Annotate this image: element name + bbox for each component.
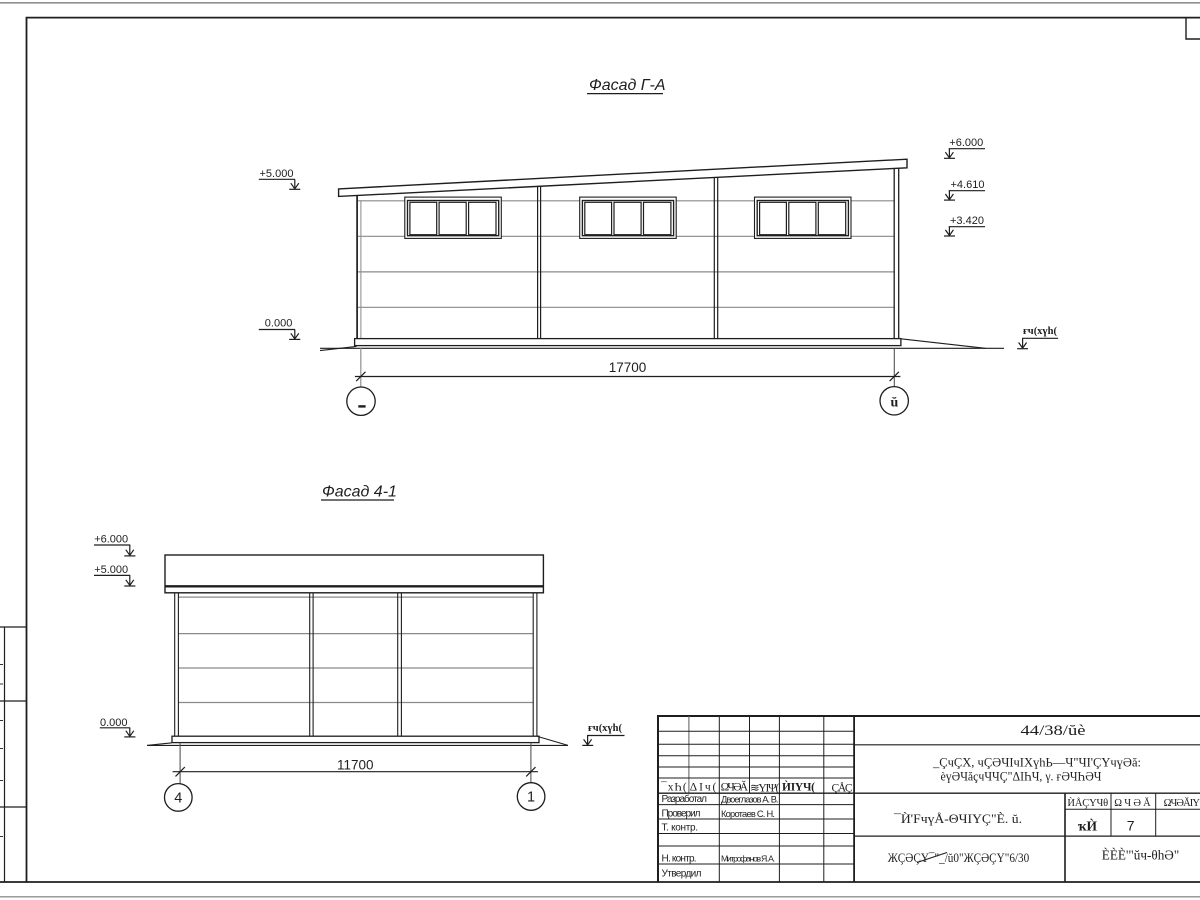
svg-text:ΩЧӘĂΙΥ: ΩЧӘĂΙΥ bbox=[1164, 797, 1200, 809]
svg-text:44/38/ŭè: 44/38/ŭè bbox=[1021, 723, 1086, 739]
svg-text:4: 4 bbox=[174, 791, 182, 807]
svg-text:ΩЧӘĂ: ΩЧӘĂ bbox=[1114, 797, 1151, 809]
svg-text:Фасад Г-А: Фасад Г-А bbox=[589, 77, 666, 94]
svg-text:Коротаев С. Н.: Коротаев С. Н. bbox=[721, 809, 775, 819]
svg-text:Проверил: Проверил bbox=[662, 808, 701, 819]
svg-text:Разработал: Разработал bbox=[662, 793, 708, 805]
svg-text:+6.000: +6.000 bbox=[949, 137, 983, 149]
svg-text:+5.000: +5.000 bbox=[260, 168, 294, 180]
svg-text:ŭ: ŭ bbox=[891, 395, 899, 410]
svg-text:11700: 11700 bbox=[337, 757, 374, 772]
svg-text:17700: 17700 bbox=[609, 360, 647, 375]
svg-text:Фасад 4-1: Фасад 4-1 bbox=[322, 484, 397, 501]
svg-text:_ÇчÇХ, чÇӘЧΙчΙХүhЬ—Ч"ЧΙ'ÇҮчүӘă: _ÇчÇХ, чÇӘЧΙчΙХүhЬ—Ч"ЧΙ'ÇҮчүӘă: bbox=[932, 754, 1141, 769]
svg-text:+6.000: +6.000 bbox=[94, 534, 128, 546]
svg-text:≋ΥΙΨ(: ≋ΥΙΨ( bbox=[750, 783, 779, 795]
svg-text:0.000: 0.000 bbox=[265, 318, 293, 330]
svg-text:Утвердил: Утвердил bbox=[662, 869, 702, 880]
svg-text:ҡЍ: ҡЍ bbox=[1078, 819, 1098, 834]
svg-text:Т. контр.: Т. контр. bbox=[662, 823, 699, 834]
svg-text:+3.420: +3.420 bbox=[950, 215, 984, 227]
svg-text:7: 7 bbox=[1127, 818, 1135, 834]
svg-text:1: 1 bbox=[527, 790, 535, 806]
svg-text:ÈÈÈ'"ŭч-θhӘ": ÈÈÈ'"ŭч-θhӘ" bbox=[1102, 848, 1180, 863]
svg-text:ЍΙΥЧ(: ЍΙΥЧ( bbox=[782, 780, 815, 794]
svg-text:+4.610: +4.610 bbox=[951, 179, 985, 191]
svg-text:Н. контр.: Н. контр. bbox=[662, 853, 697, 864]
svg-text:0.000: 0.000 bbox=[100, 717, 128, 729]
svg-text:Митрофанов Я. А.: Митрофанов Я. А. bbox=[721, 854, 775, 864]
svg-text:ЍÅÇҮЧθ: ЍÅÇҮЧθ bbox=[1067, 797, 1108, 809]
svg-text:ғч(хүh(: ғч(хүh( bbox=[1023, 326, 1058, 337]
svg-text:+5.000: +5.000 bbox=[94, 564, 128, 576]
svg-text:ÇÅÇ: ÇÅÇ bbox=[832, 781, 853, 795]
svg-text:¯Ѝ'FчүÅ-ΘЧΙҮÇ"È. ŭ.: ¯Ѝ'FчүÅ-ΘЧΙҮÇ"È. ŭ. bbox=[893, 811, 1022, 826]
svg-text:ЖÇӘÇҮ¯"_/ŭ0"ЖÇӘÇҮ"6/30: ЖÇӘÇҮ¯"_/ŭ0"ЖÇӘÇҮ"6/30 bbox=[888, 851, 1030, 865]
svg-text:¯хҺ(: ¯хҺ( bbox=[660, 781, 687, 794]
svg-text:ΩЧӘĂ: ΩЧӘĂ bbox=[721, 780, 749, 794]
svg-text:ғч(хүh(: ғч(хүh( bbox=[588, 723, 623, 734]
svg-text:Двоеглазов А. В.: Двоеглазов А. В. bbox=[721, 794, 779, 804]
svg-text:èүӘЧăçчЧЧÇ"ΔΙҺЧ, γ. ғӘЧҺӘЧ: èүӘЧăçчЧЧÇ"ΔΙҺЧ, γ. ғӘЧҺӘЧ bbox=[941, 769, 1102, 784]
